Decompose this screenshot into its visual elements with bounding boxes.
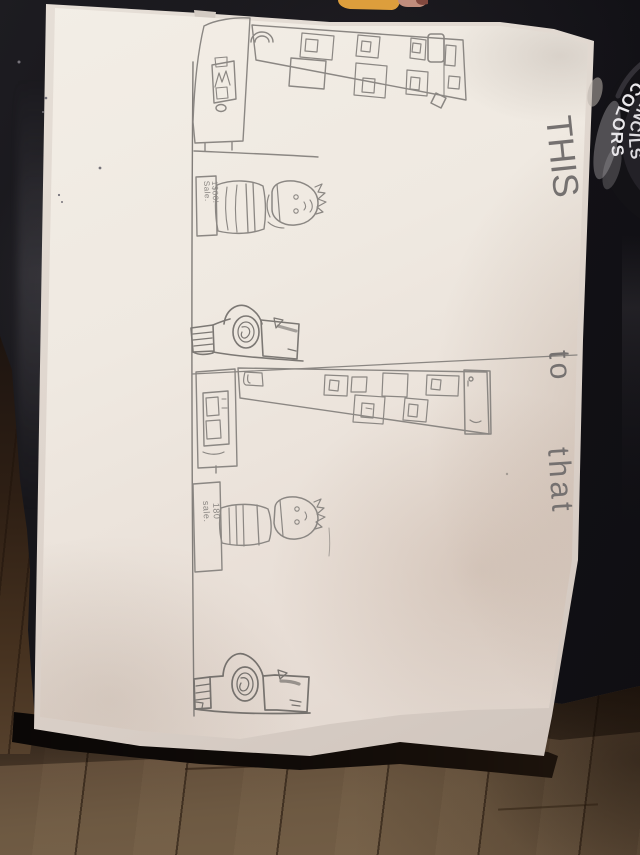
- svg-text:to: to: [542, 349, 577, 384]
- svg-text:THIS: THIS: [538, 114, 587, 200]
- svg-text:that: that: [541, 446, 581, 516]
- svg-text:sale.: sale.: [201, 501, 212, 523]
